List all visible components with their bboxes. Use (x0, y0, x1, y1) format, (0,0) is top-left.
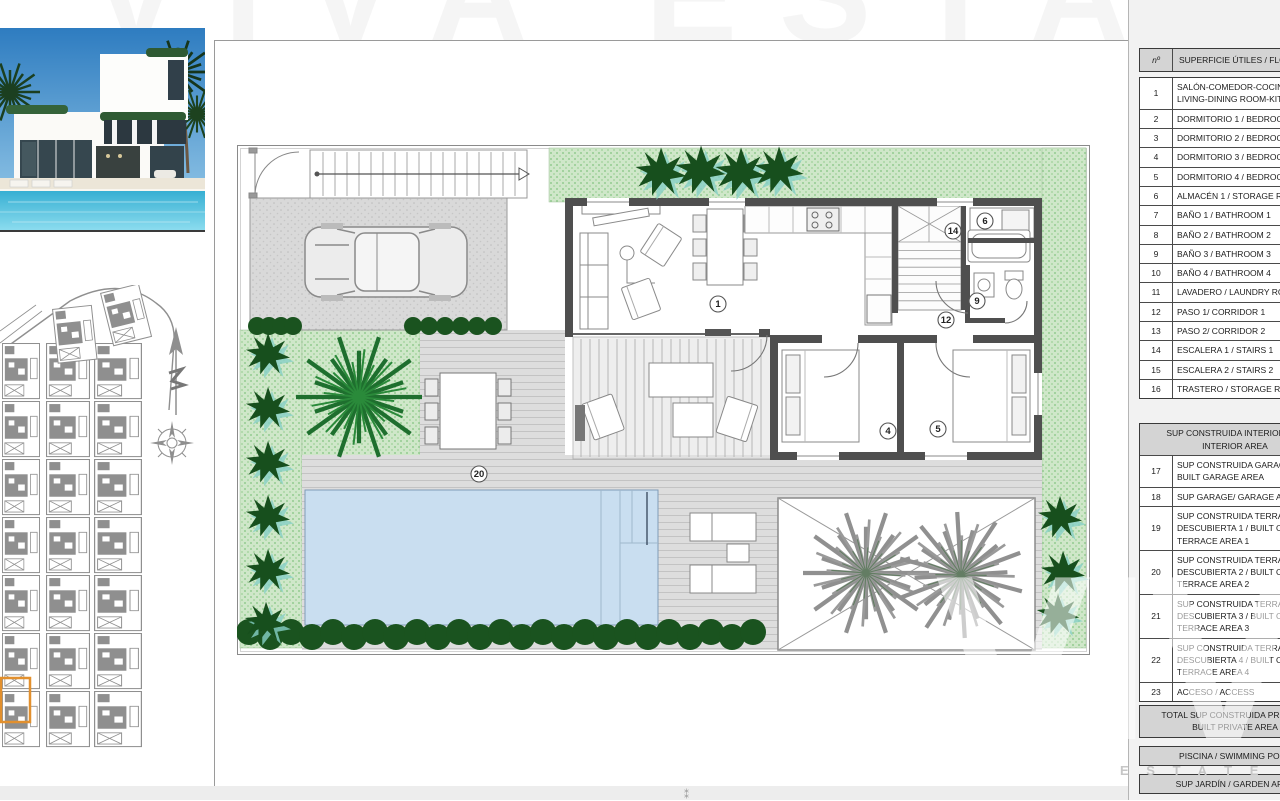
room-number: 15 (1140, 361, 1173, 379)
compass-rose-icon (150, 421, 194, 465)
table-row: 23ACCESO / ACCESS (1140, 683, 1280, 701)
room-name: ALMACÉN 1 / STORAGE RO (1173, 187, 1280, 205)
plot (2, 692, 39, 747)
room-number: 4 (1140, 148, 1173, 166)
swimming-pool (305, 490, 658, 625)
plot (95, 576, 142, 631)
svg-text:1: 1 (715, 299, 721, 310)
room-number: nº (1140, 49, 1173, 71)
plot (47, 518, 90, 573)
table-row: 13PASO 2/ CORRIDOR 2 (1140, 322, 1280, 341)
site-plan (0, 285, 210, 760)
room-number: 19 (1140, 507, 1173, 550)
fold-mark: ⁑ (684, 790, 689, 801)
plot (53, 305, 97, 363)
plot (47, 460, 90, 515)
room-label-9: 9 (969, 293, 985, 309)
table-row: 10BAÑO 4 / BATHROOM 4 (1140, 264, 1280, 283)
room-name: DORMITORIO 4 / BEDROO (1173, 168, 1280, 186)
table-row: 20SUP CONSTRUIDA TERRAZ DESCUBIERTA 2 / … (1140, 551, 1280, 595)
room-name: SUP CONSTRUIDA GARAG BUILT GARAGE AREA (1173, 456, 1280, 487)
room-name: SUP CONSTRUIDA TERRAZ DESCUBIERTA 1 / BU… (1173, 507, 1280, 550)
room-label-4: 4 (880, 423, 896, 439)
table-row: 19SUP CONSTRUIDA TERRAZ DESCUBIERTA 1 / … (1140, 507, 1280, 551)
room-number: 22 (1140, 639, 1173, 682)
table-block: SUP CONSTRUIDA INTERIOR / BU INTERIOR AR… (1139, 423, 1280, 702)
plot (95, 518, 142, 573)
table-row: 22SUP CONSTRUIDA TERRAZ DESCUBIERTA 4 / … (1140, 639, 1280, 683)
plot (95, 402, 142, 457)
room-label-6: 6 (977, 213, 993, 229)
room-number: 13 (1140, 322, 1173, 340)
room-number: 2 (1140, 110, 1173, 128)
table-block: 1SALÓN-COMEDOR-COCIN LIVING-DINING ROOM-… (1139, 77, 1280, 399)
car-top-view (305, 223, 467, 301)
page-margin (0, 786, 1280, 800)
room-name: LAVADERO / LAUNDRY RO (1173, 283, 1280, 301)
svg-text:6: 6 (982, 216, 987, 227)
svg-text:12: 12 (941, 315, 952, 326)
room-number: 17 (1140, 456, 1173, 487)
table-row: 3DORMITORIO 2 / BEDROO (1140, 129, 1280, 148)
room-number: 11 (1140, 283, 1173, 301)
table-row: SUP CONSTRUIDA INTERIOR / BU INTERIOR AR… (1140, 424, 1280, 456)
table-row: 15ESCALERA 2 / STAIRS 2 (1140, 361, 1280, 380)
room-name: BAÑO 3 / BATHROOM 3 (1173, 245, 1280, 263)
table-block: nºSUPERFICIE ÚTILES / FLOO (1139, 48, 1280, 72)
drawing-frame: 1 4 5 6 9 12 14 20 (214, 40, 1130, 788)
room-label-20: 20 (471, 466, 487, 482)
floor-plan: 1 4 5 6 9 12 14 20 (237, 145, 1090, 655)
room-name: BAÑO 4 / BATHROOM 4 (1173, 264, 1280, 282)
room-name: SUP CONSTRUIDA TERRAZ DESCUBIERTA 3 / BU… (1173, 595, 1280, 638)
plot (47, 576, 90, 631)
area-table-panel: nºSUPERFICIE ÚTILES / FLOO1SALÓN-COMEDOR… (1128, 0, 1280, 800)
room-number: 16 (1140, 380, 1173, 398)
room-number: 20 (1140, 551, 1173, 594)
room-number: 12 (1140, 303, 1173, 321)
room-name: BAÑO 1 / BATHROOM 1 (1173, 206, 1280, 224)
svg-text:20: 20 (474, 469, 485, 480)
room-label-12: 12 (938, 312, 954, 328)
room-number: 5 (1140, 168, 1173, 186)
plot (47, 402, 90, 457)
table-row: 12PASO 1/ CORRIDOR 1 (1140, 303, 1280, 322)
table-row: 6ALMACÉN 1 / STORAGE RO (1140, 187, 1280, 206)
room-name: ESCALERA 2 / STAIRS 2 (1173, 361, 1280, 379)
pergola-terrace (573, 337, 775, 459)
north-arrow-icon (169, 327, 184, 415)
room-name: SALÓN-COMEDOR-COCIN LIVING-DINING ROOM-K… (1173, 78, 1280, 109)
room-name: ESCALERA 1 / STAIRS 1 (1173, 341, 1280, 359)
svg-text:4: 4 (885, 426, 891, 437)
room-name: DORMITORIO 2 / BEDROO (1173, 129, 1280, 147)
table-row: 21SUP CONSTRUIDA TERRAZ DESCUBIERTA 3 / … (1140, 595, 1280, 639)
room-number: 14 (1140, 341, 1173, 359)
plot-grid (2, 344, 141, 747)
room-number: 23 (1140, 683, 1173, 701)
plot (2, 634, 39, 689)
table-row: 11LAVADERO / LAUNDRY RO (1140, 283, 1280, 302)
room-name: ACCESO / ACCESS (1173, 683, 1280, 701)
room-label-5: 5 (930, 421, 946, 437)
page: VIVA ESTATE (0, 0, 1280, 800)
plot (95, 460, 142, 515)
room-name: SUPERFICIE ÚTILES / FLOO (1173, 49, 1280, 71)
table-row: 16TRASTERO / STORAGE RO (1140, 380, 1280, 398)
room-name: BAÑO 2 / BATHROOM 2 (1173, 226, 1280, 244)
table-row: 18SUP GARAGE/ GARAGE AR (1140, 488, 1280, 507)
room-number: 8 (1140, 226, 1173, 244)
room-name: PASO 2/ CORRIDOR 2 (1173, 322, 1280, 340)
table-row: 2DORMITORIO 1 / BEDROO (1140, 110, 1280, 129)
room-number: 18 (1140, 488, 1173, 506)
room-name: DORMITORIO 1 / BEDROO (1173, 110, 1280, 128)
plot (2, 460, 39, 515)
table-row: TOTAL SUP CONSTRUIDA PRIVADA / BUILT PRI… (1140, 706, 1280, 737)
plot (101, 285, 152, 346)
room-label-1: 1 (710, 296, 726, 312)
room-name: SUP CONSTRUIDA TERRAZ DESCUBIERTA 2 / BU… (1173, 551, 1280, 594)
access-ramp (310, 150, 529, 198)
plot (2, 576, 39, 631)
villa-photo (0, 28, 205, 232)
table-section-label: SUP CONSTRUIDA INTERIOR / BU INTERIOR AR… (1140, 424, 1280, 455)
room-number: 10 (1140, 264, 1173, 282)
table-row: 9BAÑO 3 / BATHROOM 3 (1140, 245, 1280, 264)
summary-bar: SUP JARDÍN / GARDEN AREA (1139, 774, 1280, 794)
photo-pool-terrace (0, 178, 205, 232)
table-section-label: TOTAL SUP CONSTRUIDA PRIVADA / BUILT PRI… (1140, 706, 1280, 737)
room-name: TRASTERO / STORAGE RO (1173, 380, 1280, 398)
plot (2, 402, 39, 457)
area-table: nºSUPERFICIE ÚTILES / FLOO1SALÓN-COMEDOR… (1139, 48, 1280, 800)
room-number: 9 (1140, 245, 1173, 263)
svg-text:9: 9 (974, 296, 979, 307)
svg-text:5: 5 (935, 424, 941, 435)
plot (95, 634, 142, 689)
plot (47, 692, 90, 747)
table-row: 5DORMITORIO 4 / BEDROO (1140, 168, 1280, 187)
plot (95, 344, 142, 399)
room-number: 1 (1140, 78, 1173, 109)
table-row: 7BAÑO 1 / BATHROOM 1 (1140, 206, 1280, 225)
table-row: nºSUPERFICIE ÚTILES / FLOO (1140, 49, 1280, 71)
plot (47, 634, 90, 689)
summary-bar: PISCINA / SWIMMING POOL (1139, 746, 1280, 766)
room-name: SUP CONSTRUIDA TERRAZ DESCUBIERTA 4 / BU… (1173, 639, 1280, 682)
table-row: 8BAÑO 2 / BATHROOM 2 (1140, 226, 1280, 245)
room-number: 7 (1140, 206, 1173, 224)
stairs (898, 206, 961, 310)
room-number: 6 (1140, 187, 1173, 205)
svg-text:14: 14 (948, 226, 959, 237)
room-number: 3 (1140, 129, 1173, 147)
room-label-14: 14 (945, 223, 961, 239)
palm-planter (778, 492, 1045, 655)
table-row: 14ESCALERA 1 / STAIRS 1 (1140, 341, 1280, 360)
plot (2, 344, 39, 399)
room-number: 21 (1140, 595, 1173, 638)
room-name: SUP GARAGE/ GARAGE AR (1173, 488, 1280, 506)
room-name: DORMITORIO 3 / BEDROO (1173, 148, 1280, 166)
table-block: TOTAL SUP CONSTRUIDA PRIVADA / BUILT PRI… (1139, 705, 1280, 738)
room-name: PASO 1/ CORRIDOR 1 (1173, 303, 1280, 321)
outdoor-dining-set (425, 373, 511, 449)
table-row: 17SUP CONSTRUIDA GARAG BUILT GARAGE AREA (1140, 456, 1280, 488)
plot (2, 518, 39, 573)
plot (95, 692, 142, 747)
table-row: 4DORMITORIO 3 / BEDROO (1140, 148, 1280, 167)
table-row: 1SALÓN-COMEDOR-COCIN LIVING-DINING ROOM-… (1140, 78, 1280, 110)
